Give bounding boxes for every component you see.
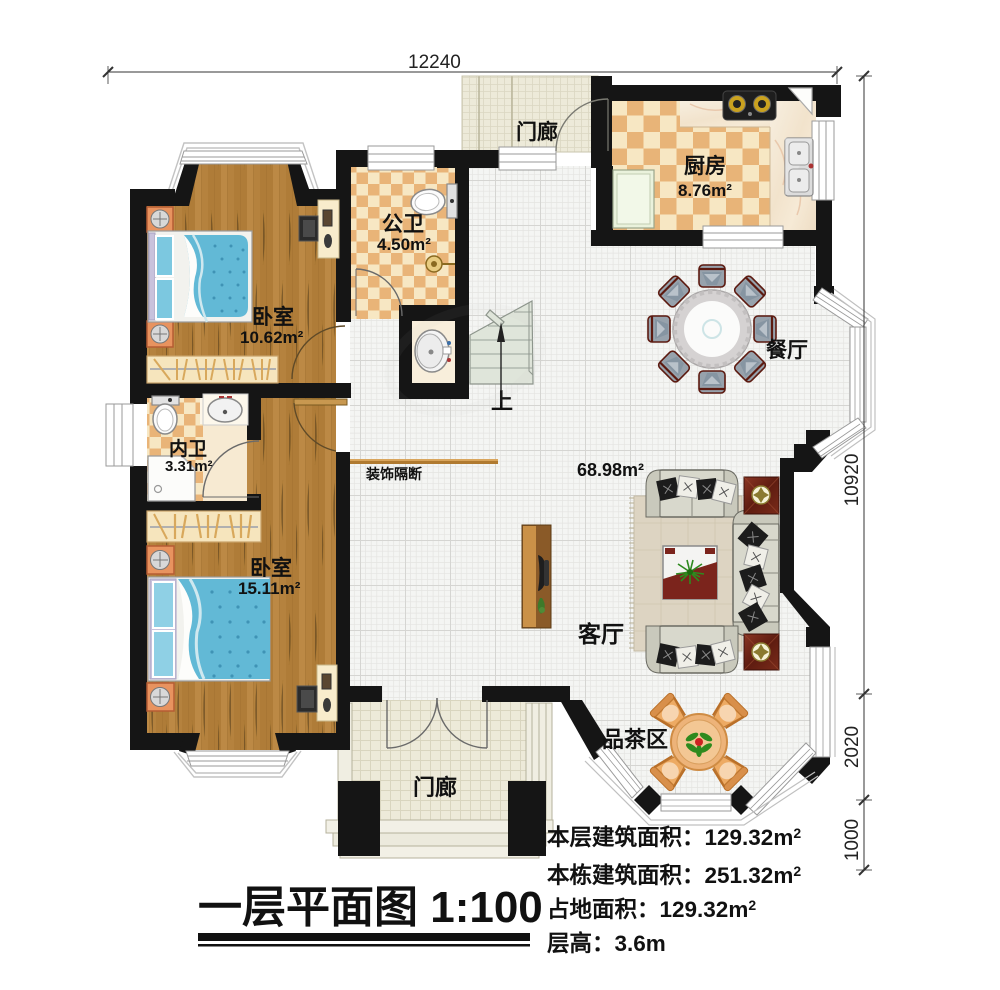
svg-text:厨房: 厨房 <box>684 154 726 178</box>
svg-text:15.11m²: 15.11m² <box>238 579 301 598</box>
svg-text:10920: 10920 <box>842 454 863 507</box>
svg-text:4.50m²: 4.50m² <box>377 235 431 254</box>
svg-text:卧室: 卧室 <box>252 305 294 329</box>
svg-text:客厅: 客厅 <box>578 621 624 647</box>
svg-text:12240: 12240 <box>408 52 461 73</box>
svg-text:门廊: 门廊 <box>413 775 457 800</box>
svg-text:10.62m²: 10.62m² <box>240 328 304 347</box>
svg-text:1000: 1000 <box>842 819 863 861</box>
svg-text:68.98m²: 68.98m² <box>577 460 644 480</box>
svg-text:内卫: 内卫 <box>169 437 207 460</box>
svg-text:层高：3.6m: 层高：3.6m <box>547 930 666 956</box>
svg-text:本层建筑面积：129.32m2: 本层建筑面积：129.32m2 <box>547 824 801 850</box>
svg-text:门廊: 门廊 <box>516 120 558 144</box>
svg-text:装饰隔断: 装饰隔断 <box>365 466 422 482</box>
svg-text:餐厅: 餐厅 <box>766 338 808 362</box>
svg-text:3.31m²: 3.31m² <box>165 458 213 475</box>
svg-text:卧室: 卧室 <box>250 556 292 580</box>
svg-text:2020: 2020 <box>842 726 863 768</box>
svg-text:本栋建筑面积：251.32m2: 本栋建筑面积：251.32m2 <box>547 862 801 888</box>
svg-text:品茶区: 品茶区 <box>602 727 668 752</box>
svg-text:占地面积：129.32m2: 占地面积：129.32m2 <box>547 897 756 922</box>
svg-text:8.76m²: 8.76m² <box>678 181 732 200</box>
svg-text:公卫: 公卫 <box>382 213 424 236</box>
svg-text:一层平面图 1:100: 一层平面图 1:100 <box>198 883 543 932</box>
